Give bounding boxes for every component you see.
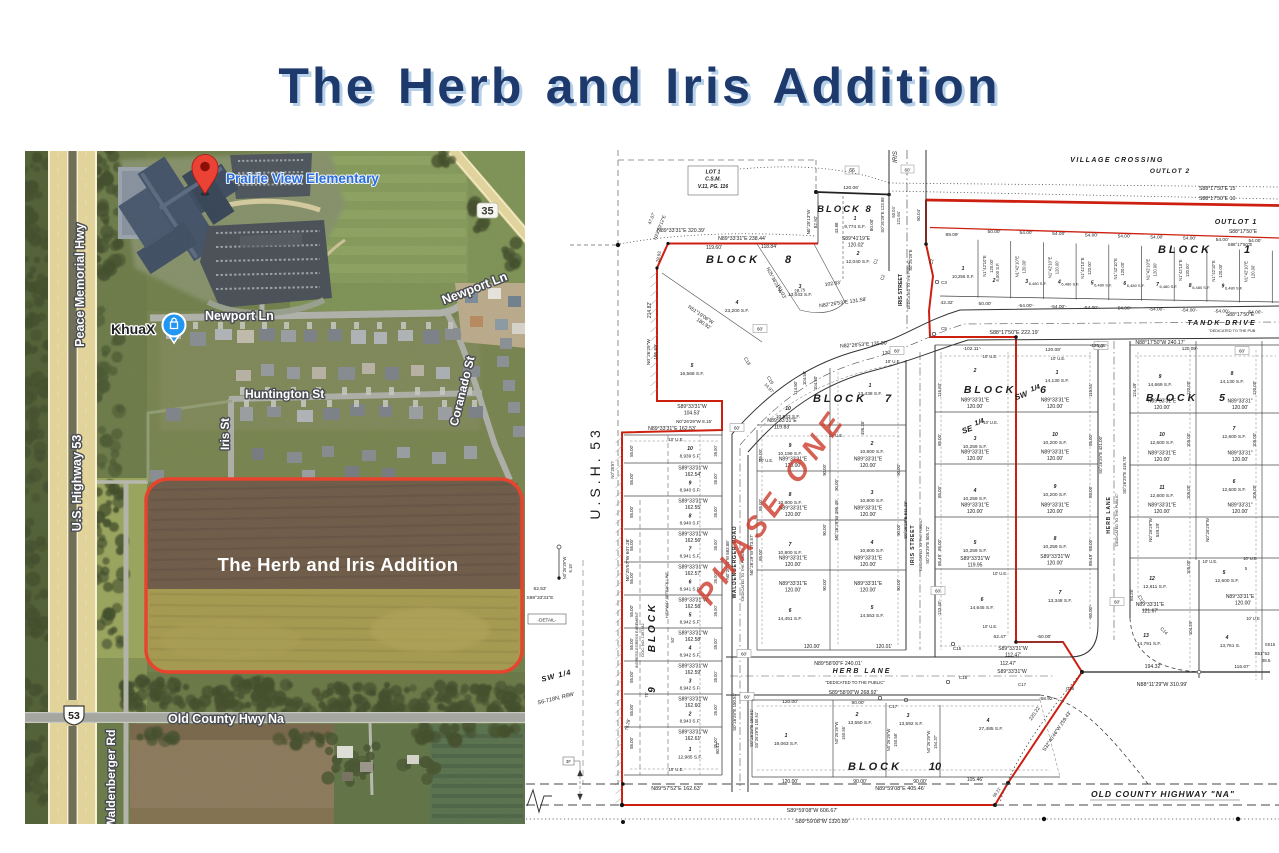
svg-text:60': 60' <box>894 349 900 354</box>
svg-text:120.00': 120.00' <box>1154 457 1170 463</box>
svg-text:8,941 S.F.: 8,941 S.F. <box>680 554 701 559</box>
svg-text:N89°33'31"E: N89°33'31"E <box>767 418 797 424</box>
svg-text:S89°33'31"W: S89°33'31"W <box>678 697 708 703</box>
svg-text:10,259 S.F.: 10,259 S.F. <box>963 548 987 554</box>
svg-text:3: 3 <box>689 679 692 685</box>
svg-text:50.04': 50.04' <box>916 209 921 221</box>
svg-text:-54.00'-: -54.00'- <box>1149 307 1166 313</box>
svg-text:60': 60' <box>1114 600 1120 605</box>
svg-text:120.00': 120.00' <box>1251 265 1256 279</box>
svg-text:N1°42'10"E: N1°42'10"E <box>1146 259 1151 281</box>
svg-text:80.00': 80.00' <box>869 219 874 231</box>
svg-text:-54.00'-: -54.00'- <box>1181 308 1198 314</box>
svg-text:53: 53 <box>68 710 80 722</box>
svg-text:S89°33'31"W: S89°33'31"W <box>997 669 1027 675</box>
svg-text:120.00': 120.00' <box>967 404 983 410</box>
svg-text:U.S.H.: U.S.H. <box>587 454 603 519</box>
svg-text:10' U.E: 10' U.E <box>1246 616 1260 621</box>
svg-text:S0°26'29"E 150.51': S0°26'29"E 150.51' <box>732 693 737 731</box>
svg-text:10: 10 <box>687 446 693 452</box>
svg-text:35.00': 35.00' <box>713 506 718 517</box>
svg-text:N0°26'29"W: N0°26'29"W <box>1205 517 1210 542</box>
svg-text:60': 60' <box>905 168 911 173</box>
svg-text:54.00': 54.00' <box>1052 231 1065 237</box>
svg-text:OUTLOT 2: OUTLOT 2 <box>1150 168 1190 175</box>
svg-text:162.58': 162.58' <box>685 637 701 643</box>
svg-text:N1°42'10"E: N1°42'10"E <box>982 255 987 277</box>
svg-text:N89°33'31": N89°33'31" <box>1227 451 1252 457</box>
svg-text:8: 8 <box>785 254 792 266</box>
svg-text:105.46': 105.46' <box>967 777 983 783</box>
svg-text:6: 6 <box>689 580 692 586</box>
svg-text:10' U.E.: 10' U.E. <box>993 571 1008 576</box>
svg-text:82.92': 82.92' <box>813 216 818 228</box>
svg-text:62.47': 62.47' <box>994 634 1007 640</box>
svg-text:12,600 S.F.: 12,600 S.F. <box>1222 434 1246 440</box>
svg-text:N1°42'10"E: N1°42'10"E <box>1080 257 1085 279</box>
svg-text:C5: C5 <box>941 326 947 331</box>
svg-text:OLD COUNTY HIGHWAY "NA": OLD COUNTY HIGHWAY "NA" <box>1091 789 1235 799</box>
svg-text:8,939 S.F.: 8,939 S.F. <box>680 454 701 459</box>
svg-text:N88°11'29"W 310.99': N88°11'29"W 310.99' <box>1137 682 1188 688</box>
svg-text:214.82': 214.82' <box>647 302 653 318</box>
svg-text:10' U.E.: 10' U.E. <box>885 359 900 364</box>
svg-text:55.00': 55.00' <box>629 506 634 518</box>
svg-text:53: 53 <box>587 426 603 450</box>
svg-text:-DETAIL-: -DETAIL- <box>538 618 557 623</box>
svg-text:42.32': 42.32' <box>941 300 954 306</box>
svg-text:8: 8 <box>1231 371 1234 377</box>
svg-text:4: 4 <box>870 540 874 546</box>
svg-text:539.29': 539.29' <box>1155 523 1160 537</box>
svg-text:8: 8 <box>1054 536 1057 542</box>
svg-text:-58.92'-: -58.92'- <box>1039 696 1056 702</box>
svg-text:12,040 S.F.: 12,040 S.F. <box>846 259 870 265</box>
svg-text:162.58': 162.58' <box>685 604 701 610</box>
svg-text:N1°42'10"E: N1°42'10"E <box>1047 256 1052 278</box>
svg-text:BLOCK: BLOCK <box>848 761 902 773</box>
svg-text:120.00': 120.00' <box>804 644 820 650</box>
svg-text:90.00': 90.00' <box>853 779 867 785</box>
svg-text:N0°26'29"W: N0°26'29"W <box>886 729 891 752</box>
svg-text:4: 4 <box>986 718 990 724</box>
svg-text:14,645 S.F.: 14,645 S.F. <box>970 605 994 611</box>
svg-text:112.47': 112.47' <box>1005 653 1021 659</box>
svg-text:N89°33'31"E 238.44': N89°33'31"E 238.44' <box>718 236 766 242</box>
svg-text:104.53': 104.53' <box>684 411 700 417</box>
svg-text:N89°33'31"E: N89°33'31"E <box>779 556 808 562</box>
svg-text:S89°33'31"W: S89°33'31"W <box>960 556 990 562</box>
svg-text:4: 4 <box>1225 635 1229 641</box>
svg-text:12,600 S.F.: 12,600 S.F. <box>1150 440 1174 446</box>
svg-text:6: 6 <box>981 597 984 603</box>
svg-text:2: 2 <box>856 251 860 257</box>
svg-text:85.49': 85.49' <box>1088 554 1093 566</box>
svg-text:120.00': 120.00' <box>1120 262 1125 276</box>
svg-text:U.S. Highway 53: U.S. Highway 53 <box>70 435 84 532</box>
svg-text:119.83': 119.83' <box>774 425 790 431</box>
svg-text:60': 60' <box>741 652 747 657</box>
svg-text:14,130 S.F.: 14,130 S.F. <box>1220 379 1244 385</box>
svg-text:N89°33'31"E: N89°33'31"E <box>854 506 883 512</box>
svg-text:120.00': 120.00' <box>1232 457 1248 463</box>
svg-text:S89°33'31"W: S89°33'31"W <box>678 664 708 670</box>
svg-text:N0°26'29"W: N0°26'29"W <box>1148 517 1153 542</box>
svg-text:N0°25'57"W 607.28': N0°25'57"W 607.28' <box>625 539 631 582</box>
svg-text:4: 4 <box>688 646 692 652</box>
svg-text:84.26': 84.26' <box>1129 589 1134 601</box>
svg-text:50.00': 50.00' <box>979 301 992 307</box>
svg-text:N89°33'31": N89°33'31" <box>1227 399 1252 405</box>
svg-text:5: 5 <box>1219 392 1225 404</box>
svg-text:6,480 S.F.: 6,480 S.F. <box>1061 282 1079 287</box>
svg-text:60': 60' <box>744 695 750 700</box>
svg-text:16,568 S.F.: 16,568 S.F. <box>680 371 704 377</box>
svg-text:N0°26'29"W 495.49': N0°26'29"W 495.49' <box>834 499 839 540</box>
svg-text:N89°33'31"E: N89°33'31"E <box>854 581 883 587</box>
svg-text:-10' U.E.: -10' U.E. <box>982 420 998 425</box>
svg-text:50.00': 50.00' <box>988 229 1001 235</box>
svg-text:120.00': 120.00' <box>1218 264 1223 278</box>
svg-text:55.00': 55.00' <box>629 445 634 457</box>
svg-text:Newport Ln: Newport Ln <box>205 309 274 323</box>
svg-text:27,485 S.F.: 27,485 S.F. <box>979 726 1003 732</box>
svg-text:KhuaX: KhuaX <box>111 321 156 337</box>
svg-text:10,259 S.F.: 10,259 S.F. <box>963 496 987 502</box>
svg-text:N0°26'29"W: N0°26'29"W <box>926 731 931 754</box>
svg-text:154.37': 154.37' <box>933 735 938 749</box>
svg-text:S89°33'31"W: S89°33'31"W <box>678 532 708 538</box>
svg-text:104.29': 104.29' <box>1188 621 1193 635</box>
svg-text:54.00': 54.00' <box>1085 232 1098 238</box>
svg-text:-54.00'-: -54.00'- <box>1116 306 1133 312</box>
svg-text:13,438 S.F.: 13,438 S.F. <box>858 391 882 397</box>
svg-text:10' U.E.: 10' U.E. <box>668 437 683 442</box>
svg-text:194.32': 194.32' <box>1145 664 1162 670</box>
svg-text:C3: C3 <box>941 280 947 285</box>
svg-text:120.00': 120.00' <box>967 509 983 515</box>
svg-text:C.S.M.: C.S.M. <box>705 177 721 183</box>
svg-text:120.01': 120.01' <box>876 644 892 650</box>
svg-text:1: 1 <box>869 383 872 389</box>
svg-text:S0°26'29"E 150.51': S0°26'29"E 150.51' <box>754 712 759 748</box>
svg-text:-133.40'-: -133.40'- <box>937 599 942 617</box>
svg-text:Old County Hwy Na: Old County Hwy Na <box>168 712 285 726</box>
svg-text:75': 75' <box>644 692 649 698</box>
svg-text:119.95: 119.95 <box>968 563 983 569</box>
svg-text:N1°42'10"E: N1°42'10"E <box>1113 258 1118 280</box>
svg-text:N89°33'31": N89°33'31" <box>1227 503 1252 509</box>
svg-text:N89°33'31"E: N89°33'31"E <box>779 581 808 587</box>
svg-text:120.00': 120.00' <box>1054 260 1059 274</box>
svg-text:SS15: SS15 <box>1265 642 1276 647</box>
svg-text:TANDK DRIVE: TANDK DRIVE <box>1187 320 1256 327</box>
svg-text:18,063 S.F.: 18,063 S.F. <box>774 741 798 747</box>
svg-text:9: 9 <box>647 687 658 693</box>
svg-text:85.00': 85.00' <box>1088 486 1093 498</box>
svg-text:35.00': 35.00' <box>713 638 718 649</box>
svg-text:14,130 S.F.: 14,130 S.F. <box>1045 378 1069 384</box>
svg-text:S51°53: S51°53 <box>1254 651 1270 656</box>
svg-text:10' U.E.: 10' U.E. <box>668 767 683 772</box>
svg-text:C17: C17 <box>1018 682 1027 687</box>
svg-text:"DEDICATED TO THE PUB: "DEDICATED TO THE PUB <box>1209 329 1256 333</box>
svg-text:S89°33'31"W: S89°33'31"W <box>678 631 708 637</box>
svg-text:114.50': 114.50' <box>793 381 798 395</box>
svg-text:90.00': 90.00' <box>896 579 901 591</box>
svg-text:S0°26'29"E 123.88: S0°26'29"E 123.88 <box>880 197 885 233</box>
svg-text:120.00': 120.00' <box>1185 263 1190 277</box>
svg-text:90.00': 90.00' <box>852 700 865 706</box>
svg-text:C17: C17 <box>889 704 898 709</box>
svg-text:120.02': 120.02' <box>848 243 864 249</box>
svg-text:2: 2 <box>688 712 692 718</box>
svg-text:N89°33'31"E 162.53': N89°33'31"E 162.53' <box>648 426 696 432</box>
svg-text:10: 10 <box>785 406 791 412</box>
svg-text:3: 3 <box>974 436 977 442</box>
svg-text:105.00': 105.00' <box>1186 485 1191 499</box>
svg-text:120.00': 120.00' <box>782 699 798 705</box>
svg-text:N1°42'10"E: N1°42'10"E <box>1178 259 1183 281</box>
svg-text:BLOCK 8: BLOCK 8 <box>817 204 873 215</box>
svg-text:85.49': 85.49' <box>937 554 942 566</box>
svg-text:85.00': 85.00' <box>937 434 942 446</box>
svg-text:S88°17'50"E 222.19': S88°17'50"E 222.19' <box>989 330 1038 336</box>
svg-text:5: 5 <box>1223 570 1226 576</box>
svg-text:495.36': 495.36' <box>860 421 865 435</box>
svg-text:162.60': 162.60' <box>685 703 701 709</box>
svg-text:120.00': 120.00' <box>1153 262 1158 276</box>
svg-text:13,348 S.F.: 13,348 S.F. <box>1048 598 1072 604</box>
svg-text:S0°26'29"E 418.75': S0°26'29"E 418.75' <box>1122 456 1127 494</box>
svg-text:85.00': 85.00' <box>937 486 942 498</box>
svg-text:OUTLOT 1: OUTLOT 1 <box>1215 219 1258 226</box>
svg-text:N89°33'31"E: N89°33'31"E <box>1041 450 1070 456</box>
svg-text:60': 60' <box>734 426 740 431</box>
svg-text:-54.00'-: -54.00'- <box>1083 305 1100 311</box>
svg-text:54.00': 54.00' <box>1183 236 1196 242</box>
svg-text:116.67': 116.67' <box>1234 664 1249 670</box>
svg-text:6,000 S.F.: 6,000 S.F. <box>995 263 1000 282</box>
svg-text:120.00': 120.00' <box>1087 261 1092 275</box>
svg-text:8: 8 <box>689 514 692 520</box>
svg-text:60': 60' <box>757 327 763 332</box>
svg-text:S89°59'08"W 1320.89': S89°59'08"W 1320.89' <box>795 819 849 825</box>
svg-text:DOC. NO. 1397442: DOC. NO. 1397442 <box>641 623 645 656</box>
svg-text:1: 1 <box>1244 244 1250 256</box>
svg-text:115.51': 115.51' <box>1088 383 1093 397</box>
svg-text:120.00': 120.00' <box>1022 260 1027 274</box>
svg-text:6,480 S.F.: 6,480 S.F. <box>1159 284 1177 289</box>
svg-text:13: 13 <box>1143 633 1149 639</box>
svg-text:55.00': 55.00' <box>629 638 634 650</box>
svg-text:Iris St: Iris St <box>220 418 232 450</box>
svg-text:S89°33'31"W: S89°33'31"W <box>678 565 708 571</box>
svg-text:N89°33'31"E: N89°33'31"E <box>1136 602 1165 608</box>
svg-text:N0°26'29"W: N0°26'29"W <box>646 339 652 365</box>
svg-text:S0°26'29"E 505.72': S0°26'29"E 505.72' <box>925 526 930 564</box>
svg-text:10' U.E.: 10' U.E. <box>1051 356 1066 361</box>
svg-text:7: 7 <box>689 547 692 553</box>
svg-text:55.00': 55.00' <box>629 704 634 716</box>
svg-text:12,611 S.F.: 12,611 S.F. <box>1143 584 1167 590</box>
svg-text:5: 5 <box>689 613 692 619</box>
svg-text:10,200 S.F.: 10,200 S.F. <box>1043 492 1067 498</box>
svg-text:120.00': 120.00' <box>1047 561 1063 567</box>
svg-text:IRIS STREET: IRIS STREET <box>910 525 916 566</box>
svg-text:120.08': 120.08' <box>1045 347 1061 353</box>
svg-text:VILLAGE CROSSING: VILLAGE CROSSING <box>1070 157 1164 164</box>
svg-text:8,940 S.F.: 8,940 S.F. <box>680 488 701 493</box>
svg-text:120.00': 120.00' <box>860 463 876 469</box>
svg-text:1: 1 <box>962 266 965 272</box>
svg-text:N1°42'10"E: N1°42'10"E <box>1015 256 1020 278</box>
svg-text:"DEDICATED TO THE PUBLIC": "DEDICATED TO THE PUBLIC" <box>825 680 885 685</box>
svg-text:35.00': 35.00' <box>713 539 718 550</box>
svg-text:N89°33'31"E: N89°33'31"E <box>1148 451 1177 457</box>
svg-text:35.00': 35.00' <box>713 445 718 456</box>
svg-text:12,985 S.F.: 12,985 S.F. <box>678 755 702 761</box>
svg-text:162.54': 162.54' <box>685 472 701 478</box>
svg-text:120.00': 120.00' <box>860 562 876 568</box>
svg-text:N89°33'31"E: N89°33'31"E <box>961 398 990 404</box>
svg-text:55.00': 55.00' <box>629 737 634 749</box>
svg-text:S89°33'31"W: S89°33'31"W <box>677 404 707 410</box>
svg-text:35.00': 35.00' <box>713 704 718 715</box>
svg-text:120.06': 120.06' <box>843 185 859 191</box>
svg-text:13,592 S.F.: 13,592 S.F. <box>899 721 923 727</box>
svg-text:"DEDICATED TO THE PUBLIC": "DEDICATED TO THE PUBLIC" <box>907 259 911 311</box>
svg-text:1: 1 <box>689 747 692 753</box>
svg-text:Prairie View Elementary: Prairie View Elementary <box>226 171 379 186</box>
svg-text:5: 5 <box>871 605 874 611</box>
svg-text:N89°58'00"F 240.01': N89°58'00"F 240.01' <box>814 661 861 667</box>
svg-text:162.59': 162.59' <box>685 670 701 676</box>
svg-text:150.55': 150.55' <box>841 726 846 740</box>
svg-text:120.00': 120.00' <box>785 512 801 518</box>
svg-text:50': 50' <box>670 637 675 643</box>
svg-text:3: 3 <box>907 713 910 719</box>
svg-text:8,942 S.F.: 8,942 S.F. <box>680 686 701 691</box>
svg-text:8,942 S.F.: 8,942 S.F. <box>680 620 701 625</box>
svg-text:Waldenberger Rd: Waldenberger Rd <box>104 730 118 824</box>
svg-text:N0°25'5?: N0°25'5? <box>610 461 615 479</box>
svg-text:10' U.E.: 10' U.E. <box>1203 559 1218 564</box>
svg-text:105.00': 105.00' <box>1252 433 1257 447</box>
svg-text:S88°17'50"E 10: S88°17'50"E 10 <box>1199 196 1235 202</box>
svg-text:12,600 S.F.: 12,600 S.F. <box>1150 493 1174 499</box>
svg-text:85.00': 85.00' <box>1088 434 1093 446</box>
svg-text:120.00': 120.00' <box>785 562 801 568</box>
svg-text:6,480 S.F.: 6,480 S.F. <box>1225 286 1243 291</box>
svg-text:52.53': 52.53' <box>534 586 547 592</box>
svg-text:85.00': 85.00' <box>1088 539 1093 551</box>
svg-text:6,480 S.F.: 6,480 S.F. <box>1029 281 1047 286</box>
svg-text:120.00': 120.00' <box>1232 509 1248 515</box>
svg-text:12,600 S.F.: 12,600 S.F. <box>1222 487 1246 493</box>
svg-text:10,259 S.F.: 10,259 S.F. <box>1043 544 1067 550</box>
svg-text:10: 10 <box>1052 432 1058 438</box>
svg-text:N89°33'31"E: N89°33'31"E <box>1226 594 1255 600</box>
svg-text:105.00': 105.00' <box>1186 560 1191 574</box>
svg-text:35.00': 35.00' <box>713 671 718 682</box>
svg-text:S89°33'31"W: S89°33'31"W <box>998 646 1028 652</box>
svg-text:N1°42'10"E: N1°42'10"E <box>1244 261 1249 283</box>
svg-text:S89°33'31"E: S89°33'31"E <box>527 595 554 601</box>
svg-text:N89°33'31"E: N89°33'31"E <box>854 556 883 562</box>
svg-text:9: 9 <box>689 481 692 487</box>
svg-text:54.00': 54.00' <box>1118 233 1131 239</box>
svg-text:165.69': 165.69' <box>653 344 659 360</box>
svg-text:10: 10 <box>1159 432 1165 438</box>
svg-text:55.00': 55.00' <box>629 671 634 683</box>
svg-text:10,800 S.F.: 10,800 S.F. <box>860 498 884 504</box>
svg-text:124.49': 124.49' <box>1132 383 1137 397</box>
svg-text:HERB LANE: HERB LANE <box>833 668 892 675</box>
svg-text:85.00': 85.00' <box>937 539 942 551</box>
svg-text:120.00': 120.00' <box>1154 509 1170 515</box>
svg-text:S89°33'31"W: S89°33'31"W <box>678 466 708 472</box>
svg-text:"DEDICATED TO THE PUBLIC": "DEDICATED TO THE PUBLIC" <box>919 517 923 572</box>
svg-text:162.55': 162.55' <box>685 505 701 511</box>
svg-text:N0°26'29"W 8.15': N0°26'29"W 8.15' <box>676 419 712 424</box>
svg-text:150.58': 150.58' <box>893 733 898 747</box>
svg-text:6,480 S.F.: 6,480 S.F. <box>1192 285 1210 290</box>
svg-text:13,550 S.F.: 13,550 S.F. <box>848 720 872 726</box>
svg-text:90.00': 90.00' <box>822 579 827 591</box>
svg-text:-50.00': -50.00' <box>1037 634 1052 640</box>
svg-text:BLOCK: BLOCK <box>1158 244 1212 256</box>
svg-text:14,791 S.F.: 14,791 S.F. <box>1137 641 1161 647</box>
svg-text:S0°26'29"E 421.00': S0°26'29"E 421.00' <box>1098 436 1103 474</box>
svg-text:10,256 S.F.: 10,256 S.F. <box>952 274 974 279</box>
svg-text:120.00': 120.00' <box>1252 381 1257 395</box>
svg-text:120.09'-: 120.09'- <box>1182 346 1199 351</box>
svg-text:35.00': 35.00' <box>713 473 718 484</box>
svg-text:54.00': 54.00' <box>1150 235 1163 241</box>
svg-text:2: 2 <box>870 441 874 447</box>
svg-text:BLOCK: BLOCK <box>706 254 760 266</box>
svg-text:66: 66 <box>849 168 855 174</box>
svg-text:BLOCK: BLOCK <box>647 602 658 653</box>
svg-text:IRIS STREET: IRIS STREET <box>898 273 904 306</box>
svg-text:120.00': 120.00' <box>782 779 798 785</box>
svg-text:S0°26'29"E 511.18': S0°26'29"E 511.18' <box>903 501 908 539</box>
svg-text:9: 9 <box>1159 374 1162 380</box>
svg-text:80.43': 80.43' <box>715 742 720 754</box>
svg-text:5: 5 <box>691 363 694 369</box>
svg-text:90.00': 90.00' <box>896 464 901 476</box>
svg-text:N0°26'29"W: N0°26'29"W <box>834 722 839 745</box>
svg-text:-50.00'-: -50.00'- <box>1088 604 1093 619</box>
svg-text:5: 5 <box>974 540 977 546</box>
svg-text:N1°42'10"E: N1°42'10"E <box>1211 260 1216 282</box>
svg-text:85.00': 85.00' <box>758 449 763 461</box>
svg-text:7: 7 <box>1059 590 1062 596</box>
svg-text:3F: 3F <box>566 759 571 764</box>
svg-text:120.00': 120.00' <box>1186 381 1191 395</box>
svg-text:8,943 S.F.: 8,943 S.F. <box>680 719 701 724</box>
svg-text:120.00': 120.00' <box>989 259 994 273</box>
svg-text:38.5: 38.5 <box>1262 658 1271 663</box>
svg-text:162.57': 162.57' <box>685 571 701 577</box>
svg-text:8,942 S.F.: 8,942 S.F. <box>680 653 701 658</box>
svg-text:1: 1 <box>854 216 857 222</box>
svg-text:N89°33'31"E: N89°33'31"E <box>961 503 990 509</box>
svg-text:S89°33'31"W: S89°33'31"W <box>1040 554 1070 560</box>
svg-text:104.50': 104.50' <box>813 376 818 390</box>
svg-text:118.84': 118.84' <box>761 244 777 250</box>
